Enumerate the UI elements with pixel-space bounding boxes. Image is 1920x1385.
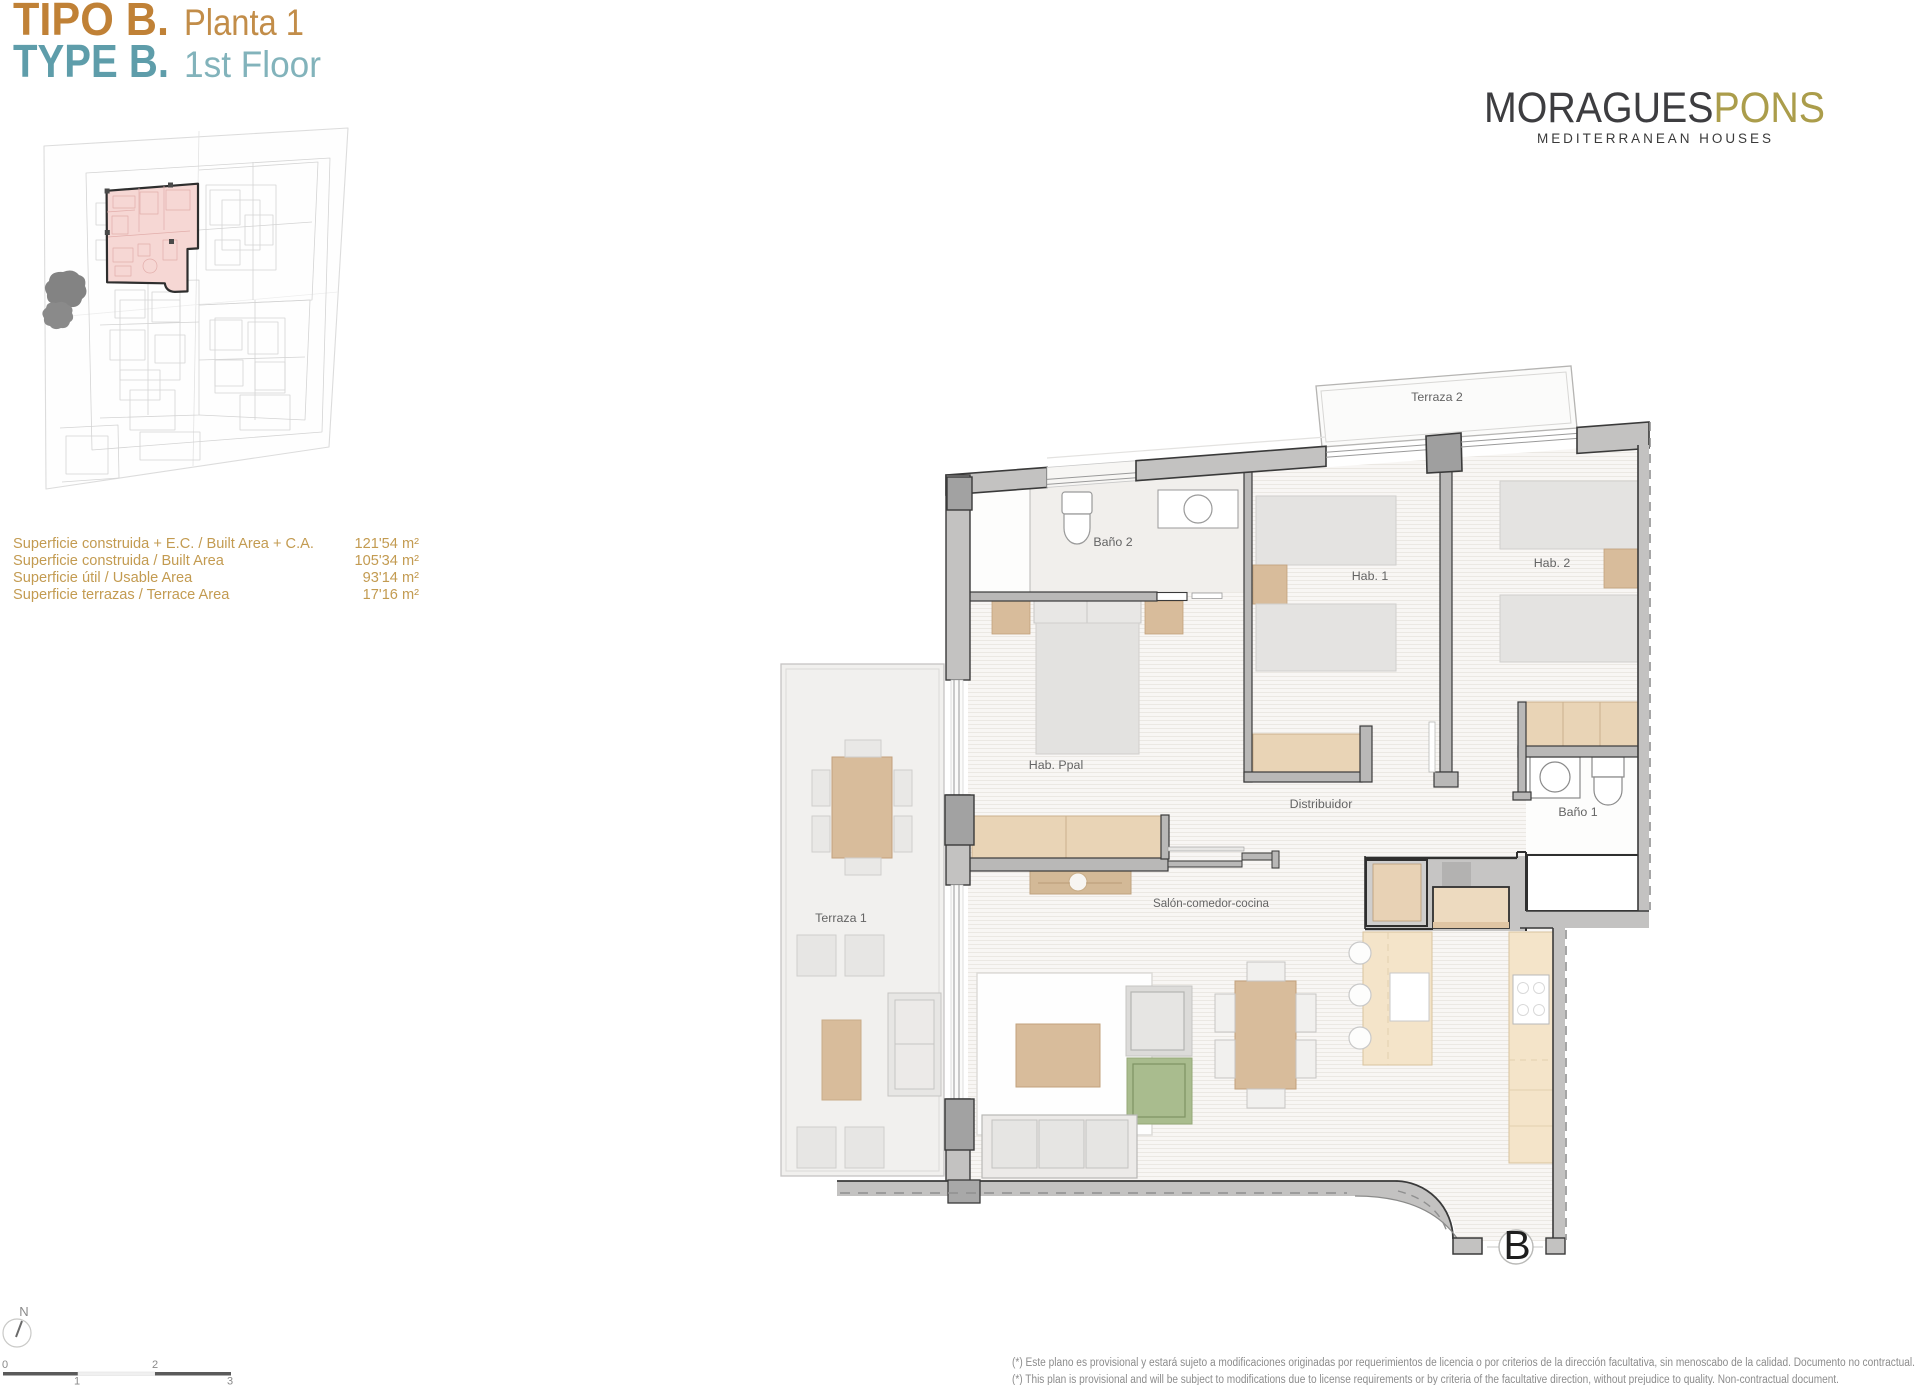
svg-text:TYPE B.: TYPE B. [13, 35, 169, 87]
svg-text:Hab. 1: Hab. 1 [1352, 569, 1389, 583]
svg-text:105'34 m²: 105'34 m² [355, 553, 420, 569]
svg-text:Salón-comedor-cocina: Salón-comedor-cocina [1153, 896, 1269, 910]
svg-text:2: 2 [152, 1359, 158, 1371]
svg-text:MORAGUESPONS: MORAGUESPONS [1484, 84, 1825, 132]
svg-text:Baño 1: Baño 1 [1558, 805, 1597, 819]
svg-text:1st Floor: 1st Floor [184, 44, 321, 85]
svg-text:Superficie terrazas / Terrace: Superficie terrazas / Terrace Area [13, 587, 230, 603]
svg-text:(*) This plan is provisional a: (*) This plan is provisional and will be… [1012, 1374, 1839, 1385]
svg-text:Terraza 2: Terraza 2 [1411, 390, 1463, 404]
svg-text:Superficie construida + E.C. /: Superficie construida + E.C. / Built Are… [13, 536, 314, 552]
svg-text:Superficie útil / Usable Area: Superficie útil / Usable Area [13, 570, 193, 586]
svg-text:Superficie construida / Built: Superficie construida / Built Area [13, 553, 225, 569]
svg-text:Hab. 2: Hab. 2 [1534, 556, 1571, 570]
svg-text:121'54 m²: 121'54 m² [355, 536, 420, 552]
svg-text:Baño 2: Baño 2 [1093, 535, 1132, 549]
svg-text:N: N [19, 1304, 28, 1319]
svg-text:(*) Este plano es provisional: (*) Este plano es provisional y estará s… [1012, 1357, 1915, 1369]
svg-text:Distribuidor: Distribuidor [1290, 797, 1353, 811]
svg-text:Hab. Ppal: Hab. Ppal [1029, 758, 1083, 772]
svg-text:93'14 m²: 93'14 m² [363, 570, 419, 586]
svg-text:Terraza 1: Terraza 1 [815, 911, 867, 925]
svg-text:B: B [1503, 1222, 1530, 1268]
svg-text:17'16 m²: 17'16 m² [363, 587, 419, 603]
svg-text:3: 3 [227, 1376, 233, 1385]
svg-text:1: 1 [74, 1376, 80, 1385]
svg-text:Planta 1: Planta 1 [184, 2, 304, 43]
svg-text:0: 0 [2, 1359, 8, 1371]
